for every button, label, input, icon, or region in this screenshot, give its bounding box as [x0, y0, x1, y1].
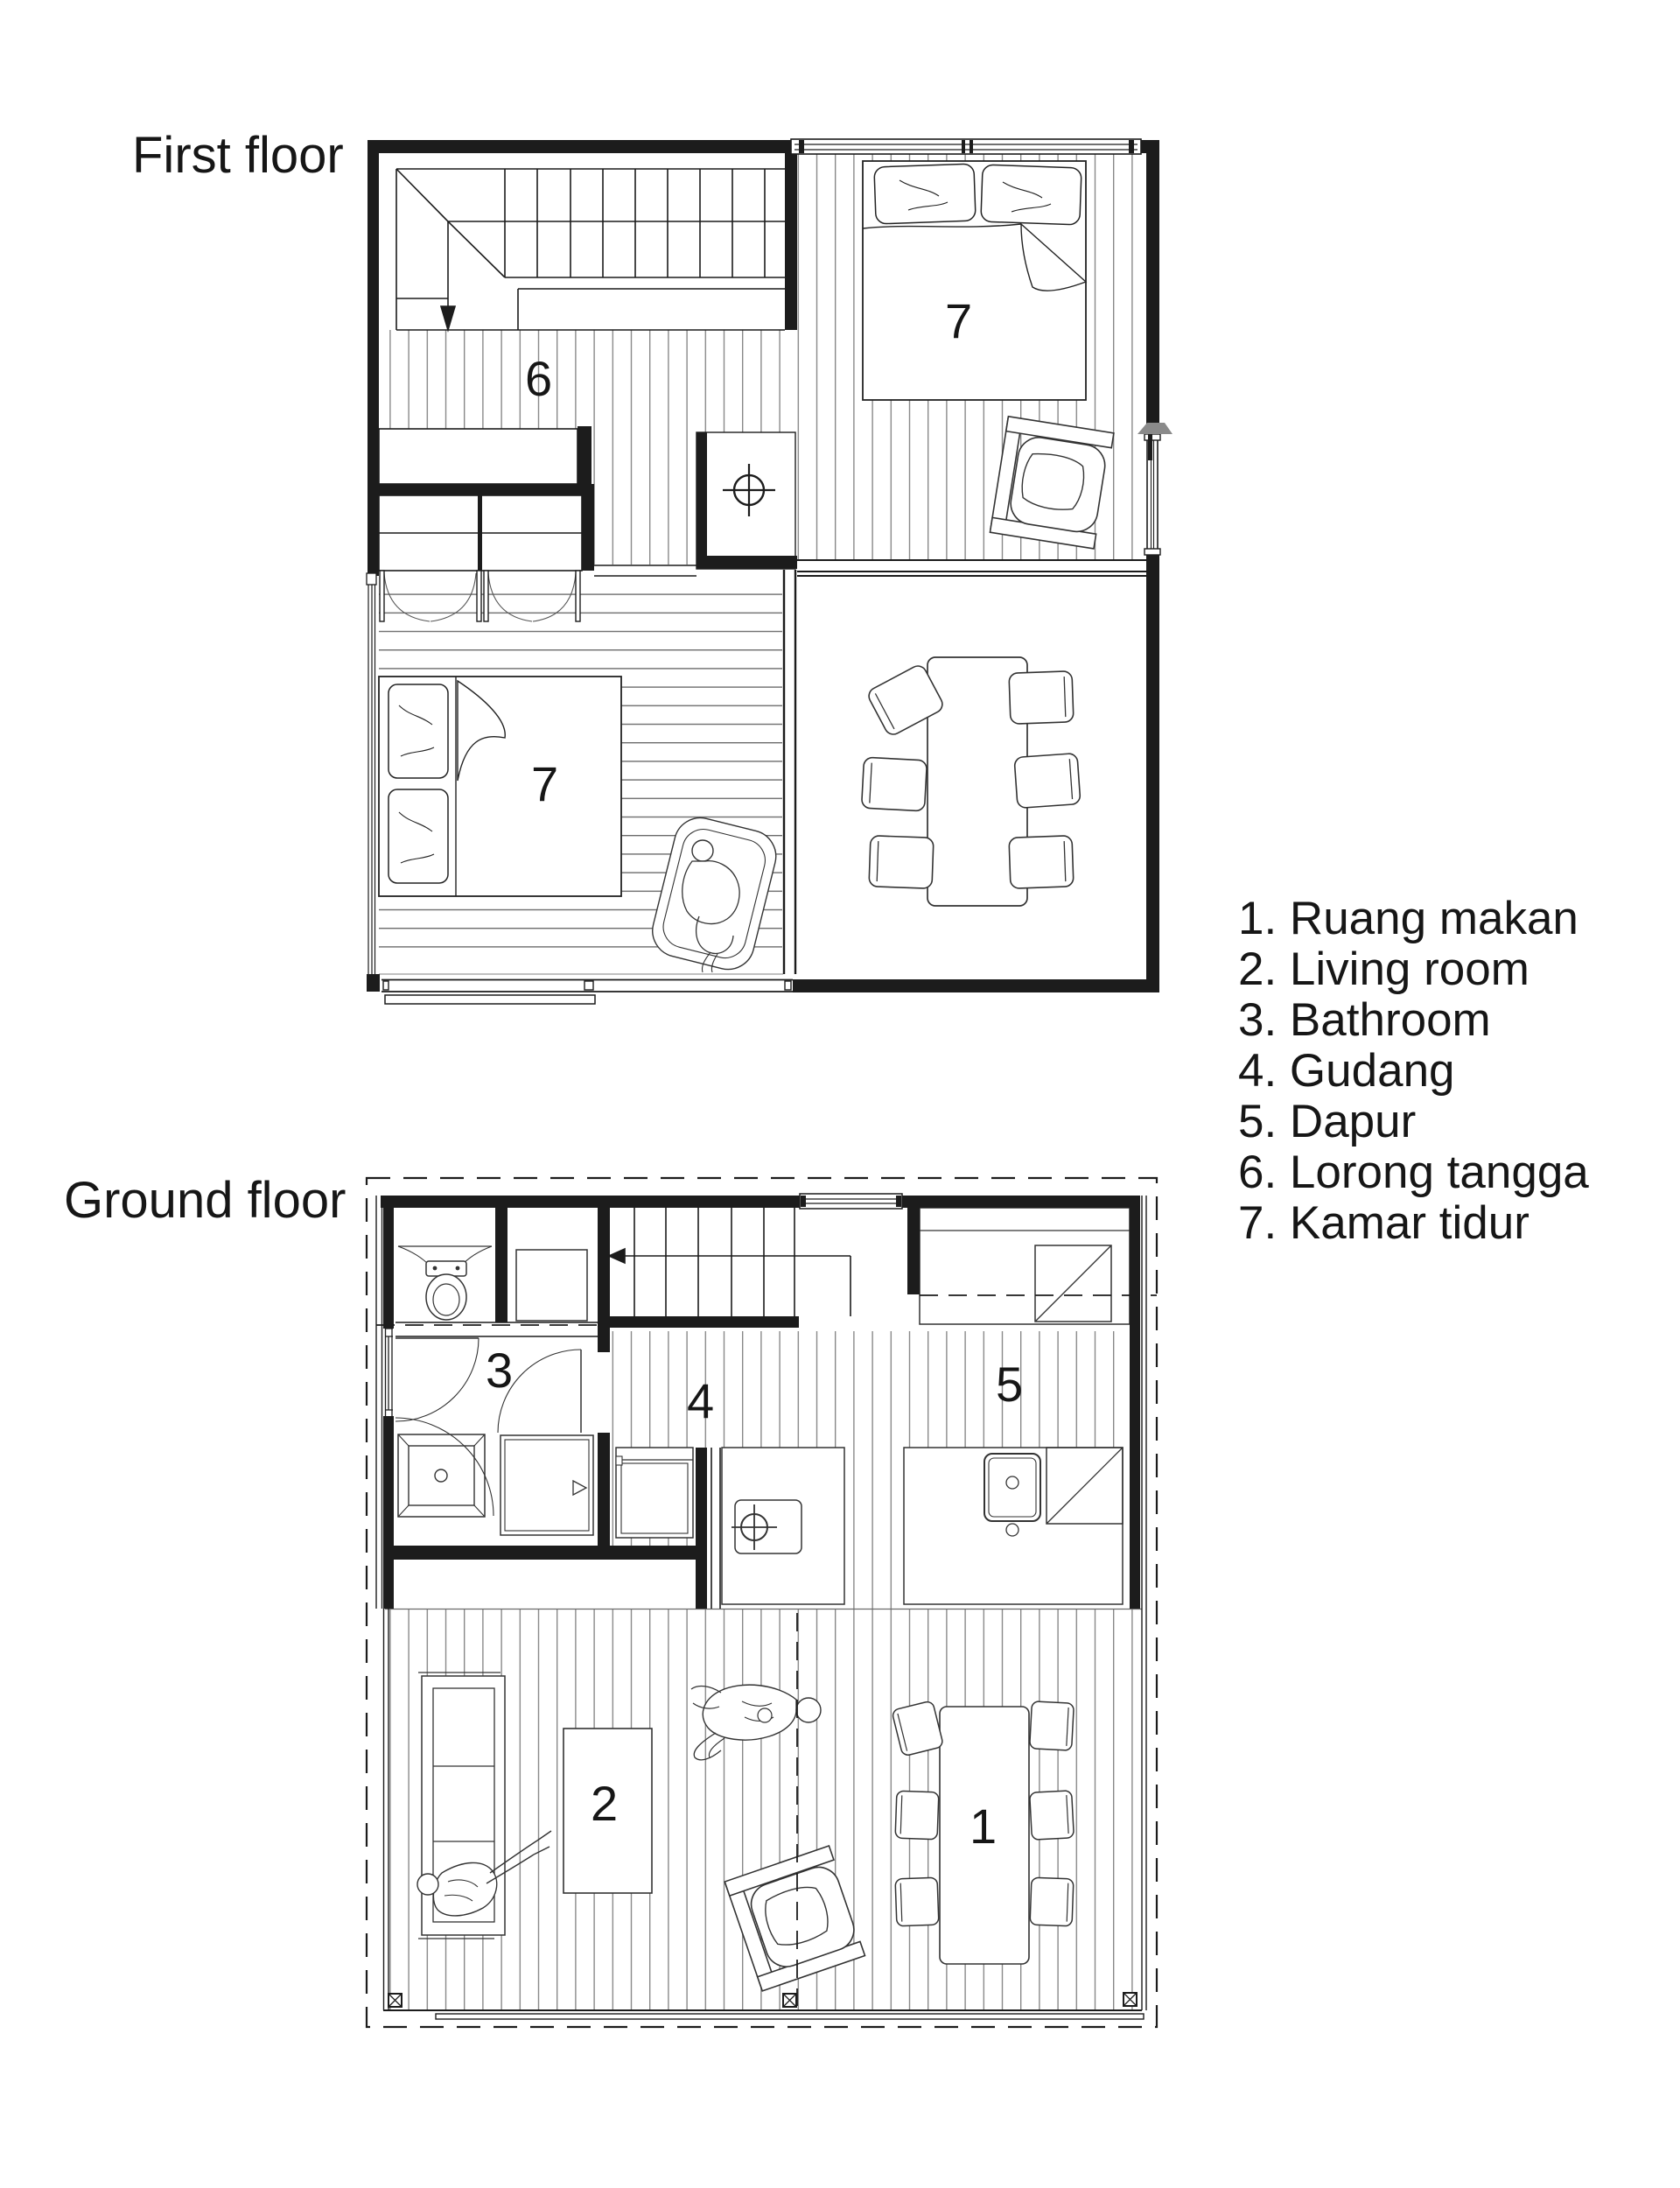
svg-text:7: 7 — [531, 756, 558, 811]
svg-text:3: 3 — [486, 1343, 513, 1398]
svg-text:5. Dapur: 5. Dapur — [1238, 1096, 1416, 1147]
svg-text:7: 7 — [945, 293, 972, 348]
svg-text:3. Bathroom: 3. Bathroom — [1238, 994, 1491, 1046]
svg-text:1: 1 — [969, 1799, 997, 1854]
svg-text:6: 6 — [525, 351, 552, 406]
svg-text:4. Gudang: 4. Gudang — [1238, 1045, 1455, 1097]
svg-text:1. Ruang makan: 1. Ruang makan — [1238, 893, 1578, 944]
svg-text:2. Living room: 2. Living room — [1238, 943, 1529, 995]
svg-text:4: 4 — [687, 1373, 714, 1428]
svg-text:7. Kamar tidur: 7. Kamar tidur — [1238, 1197, 1529, 1249]
svg-text:6. Lorong tangga: 6. Lorong tangga — [1238, 1147, 1589, 1198]
svg-text:Ground floor: Ground floor — [64, 1172, 346, 1229]
svg-text:5: 5 — [996, 1357, 1023, 1412]
svg-text:First floor: First floor — [132, 127, 344, 184]
svg-text:2: 2 — [591, 1776, 618, 1831]
